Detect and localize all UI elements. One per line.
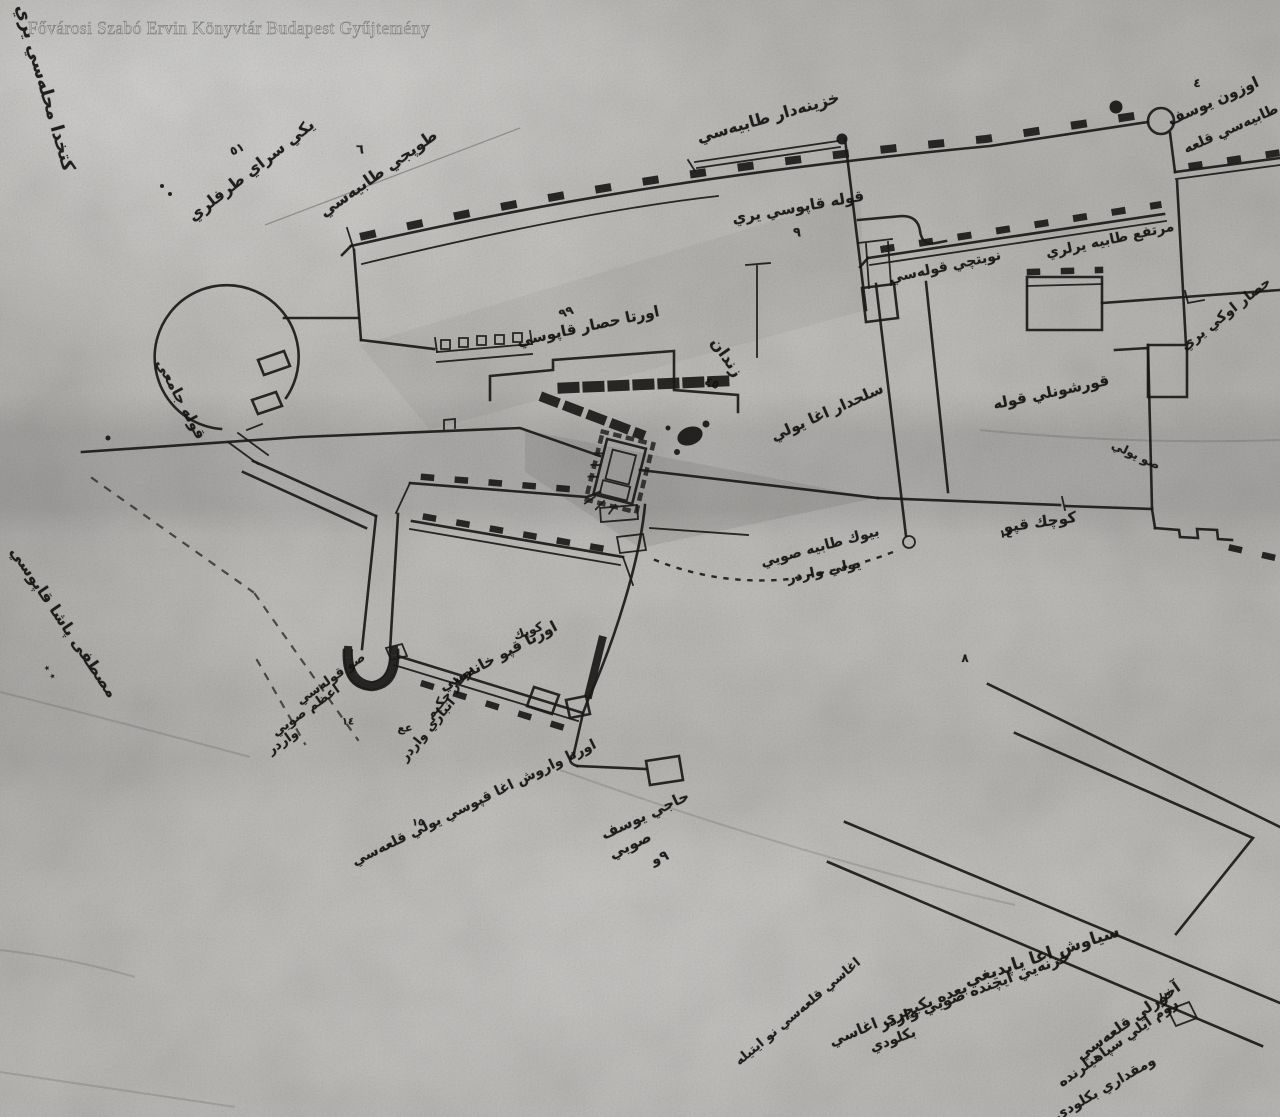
map-annotation: ٥١ [227, 140, 246, 159]
map-annotation: كوچك قپو [1002, 508, 1077, 536]
scanned-map-page: كتخدا محله‌سي يري٥١يكي سراي طرفلري٦طوپجي… [0, 0, 1280, 1117]
map-annotation: خزينه‌دار طابيه‌سي [695, 88, 842, 147]
map-annotation: قورشونلي قوله [991, 371, 1110, 413]
map-annotation: مصطفى پاشا قاپوسي [6, 543, 121, 701]
map-annotation: ٤٥ [703, 374, 722, 392]
map-annotation: ٤ [1193, 76, 1200, 90]
map-annotation: قوله قاپوسي يري [731, 187, 866, 228]
map-annotation: حصار اوكي يري [1178, 274, 1274, 354]
map-annotation: ٦ [356, 143, 364, 158]
map-annotation: آخورلي قلعه‌سي [1072, 978, 1183, 1064]
map-annotation: ٨ [961, 651, 968, 665]
map-annotation: ٩و [649, 848, 671, 869]
map-annotation: ١٤ [342, 717, 354, 728]
map-annotation: زندان [707, 334, 748, 381]
map-annotation: مرتفع طابيه يرلري [1044, 219, 1175, 262]
map-annotation: عع [397, 722, 412, 735]
map-annotation: ٭ ٭ [40, 662, 60, 682]
map-annotation: ٩٩ [557, 303, 576, 321]
map-annotation: صو يولي [1109, 438, 1162, 473]
map-annotation: قوله جامعي [152, 356, 209, 443]
map-annotation: نوبتچي قوله‌سي [888, 247, 1003, 286]
map-annotation: سلحدار اغا يولي [768, 379, 886, 445]
map-annotation: اغاسي قلعه‌سي نو ايتيله [732, 955, 863, 1069]
annotation-layer: كتخدا محله‌سي يري٥١يكي سراي طرفلري٦طوپجي… [0, 0, 1280, 1117]
library-watermark: Fővárosi Szabó Ervin Könyvtár Budapest G… [28, 18, 430, 39]
map-annotation: ١٥ [412, 818, 424, 829]
map-annotation: يكي سراي طرفلري [184, 115, 318, 225]
map-annotation: اورتا حصار قاپوسي [515, 302, 661, 350]
map-annotation: ٩ [793, 226, 801, 241]
map-annotation: اورتا واروش اغا قپوسي يولي قلعه‌سي [349, 737, 599, 870]
map-annotation: طوپجي طابيه‌سي [315, 125, 440, 221]
